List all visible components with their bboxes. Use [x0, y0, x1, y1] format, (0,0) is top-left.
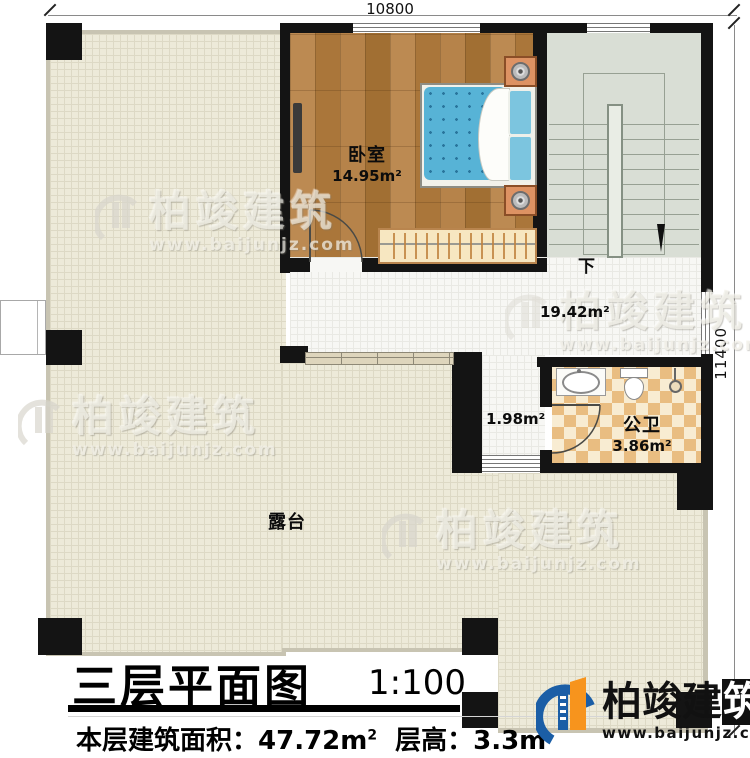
hangers-icon: [384, 233, 531, 259]
right-dimension-label: 11400: [712, 327, 730, 380]
wall: [280, 346, 308, 363]
bathroom-name: 公卫: [612, 411, 672, 437]
plan-scale: 1:100: [368, 663, 466, 703]
pillow-icon: [508, 89, 533, 136]
bathroom-area: 3.86m²: [612, 437, 672, 455]
bathroom-label: 公卫 3.86m²: [612, 411, 672, 455]
top-dimension-label: 10800: [330, 0, 450, 18]
pillow-icon: [508, 135, 533, 182]
wall: [452, 352, 482, 473]
faucet-icon: [577, 369, 581, 373]
column: [46, 330, 82, 365]
nightstand: [504, 56, 537, 87]
column: [46, 23, 82, 60]
title-underline: [68, 705, 460, 712]
brand-logo: 柏竣建筑 www.baijunjz.com: [536, 676, 750, 748]
column: [462, 618, 498, 655]
brand-name-prefix: 柏竣建: [602, 679, 722, 725]
nightstand: [504, 185, 537, 216]
right-dimension-line: [734, 25, 735, 737]
bedroom-area: 14.95m²: [328, 167, 406, 185]
terrace-floor-left: [46, 30, 286, 656]
floor-info-line: 本层建筑面积：47.72m2层高：3.3m: [76, 720, 546, 757]
floor-area-value: 47.72m: [258, 726, 367, 756]
shower-head-icon: [669, 380, 682, 393]
stair-railing: [607, 104, 623, 258]
window: [701, 292, 713, 354]
stairwell-outline: [583, 73, 665, 255]
lamp-icon: [511, 191, 530, 210]
window: [482, 455, 540, 473]
wall: [540, 367, 552, 407]
wardrobe: [378, 228, 537, 264]
terrace-label: 露台: [268, 508, 306, 534]
wall: [537, 357, 703, 367]
stair-down-label: 下: [578, 252, 595, 277]
column: [677, 472, 713, 510]
lamp-icon: [511, 62, 530, 81]
brand-url: www.baijunjz.com: [602, 724, 750, 742]
brand-logo-icon: [536, 676, 596, 748]
floor-area-sup: 2: [367, 727, 377, 743]
sliding-door: [305, 352, 454, 365]
wall: [701, 23, 713, 473]
floor-height-label: 层高：: [395, 726, 473, 756]
bedroom-door-swing: [308, 208, 366, 266]
wall: [280, 23, 290, 273]
floor-plan-canvas: 10800 11400: [0, 0, 750, 758]
floor-area-label: 本层建筑面积：: [76, 726, 258, 756]
tv-icon: [293, 103, 302, 173]
sink-icon: [562, 371, 600, 394]
nook-area-label: 1.98m²: [486, 410, 545, 428]
left-ledge: [0, 300, 46, 355]
bedroom-name: 卧室: [328, 141, 406, 167]
bedroom-label: 卧室 14.95m²: [328, 141, 406, 185]
window: [353, 23, 480, 33]
hall-area-label: 19.42m²: [540, 303, 610, 321]
brand-name: 柏竣建筑: [602, 682, 750, 722]
window: [587, 23, 650, 33]
brand-name-last: 筑: [722, 679, 750, 725]
bathroom-door-swing: [550, 403, 604, 457]
